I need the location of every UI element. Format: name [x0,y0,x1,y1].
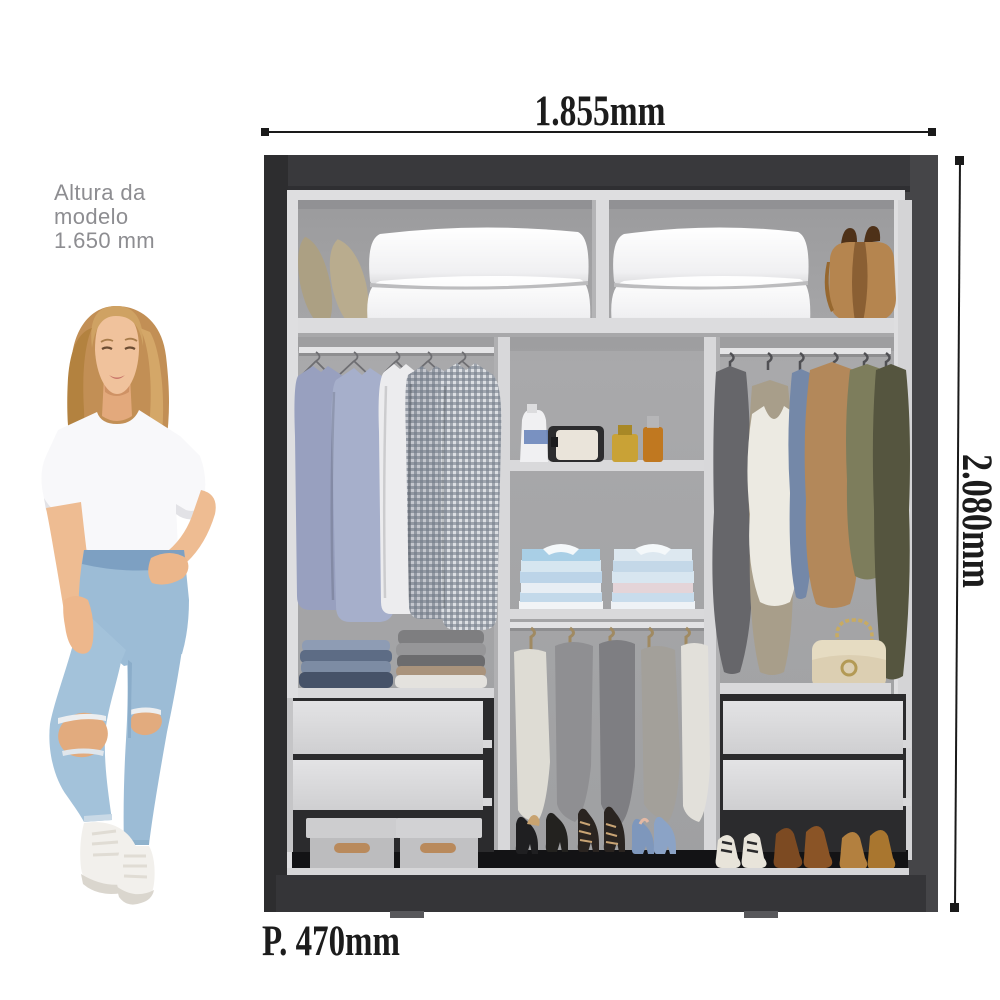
svg-text:1.650 mm: 1.650 mm [54,228,155,253]
svg-text:1.855mm: 1.855mm [535,88,666,135]
svg-text:modelo: modelo [54,204,129,229]
svg-text:P. 470mm: P. 470mm [262,918,400,965]
svg-text:Altura da: Altura da [54,180,146,205]
svg-text:2.080mm: 2.080mm [953,454,1000,588]
